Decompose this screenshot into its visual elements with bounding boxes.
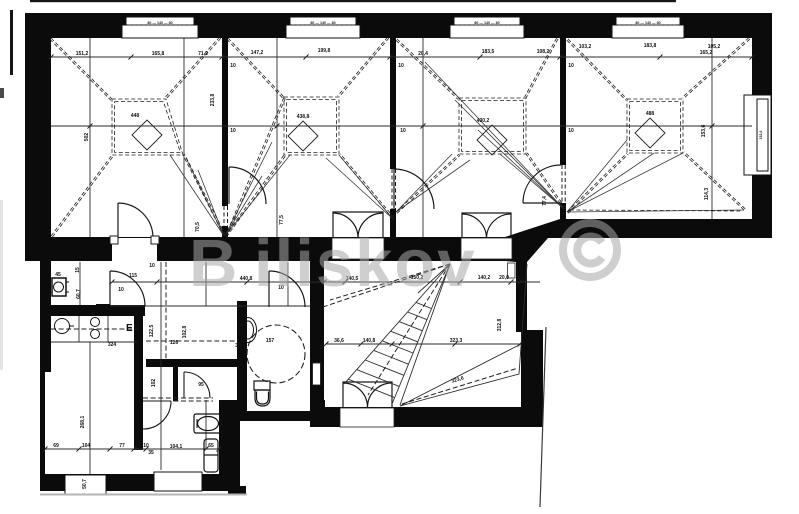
svg-text:80 — 140 — 80: 80 — 140 — 80 (474, 21, 499, 25)
svg-text:10: 10 (143, 443, 149, 449)
svg-text:183,5: 183,5 (482, 49, 495, 55)
svg-text:152,6: 152,6 (759, 131, 763, 140)
svg-text:502: 502 (84, 133, 90, 142)
svg-text:122,5: 122,5 (149, 325, 155, 338)
svg-text:448: 448 (131, 113, 140, 119)
svg-text:50,7: 50,7 (82, 479, 88, 489)
svg-text:165,2: 165,2 (700, 50, 713, 56)
svg-text:440,8: 440,8 (240, 276, 253, 282)
svg-text:80 — 140 — 80: 80 — 140 — 80 (635, 21, 660, 25)
svg-text:430,2: 430,2 (477, 118, 490, 124)
svg-text:77,4: 77,4 (542, 196, 548, 206)
svg-text:80 — 140 — 80: 80 — 140 — 80 (310, 21, 335, 25)
svg-text:15: 15 (75, 267, 81, 273)
svg-text:115: 115 (129, 273, 137, 279)
svg-text:312,8: 312,8 (497, 319, 503, 332)
svg-text:126: 126 (170, 340, 179, 346)
svg-text:183,8: 183,8 (644, 43, 657, 49)
svg-text:268,1: 268,1 (80, 416, 86, 429)
svg-text:10: 10 (568, 128, 574, 134)
svg-text:10: 10 (230, 63, 236, 69)
svg-text:20,0: 20,0 (499, 275, 509, 281)
svg-text:60,7: 60,7 (76, 289, 82, 299)
svg-text:95: 95 (198, 382, 204, 388)
svg-text:E: E (126, 323, 133, 334)
svg-text:140,8: 140,8 (363, 338, 376, 344)
svg-text:10: 10 (398, 63, 404, 69)
svg-text:10: 10 (568, 63, 574, 69)
svg-text:10: 10 (118, 287, 124, 293)
svg-text:10: 10 (230, 128, 236, 134)
svg-text:77,5: 77,5 (279, 215, 285, 225)
svg-text:65: 65 (208, 443, 214, 449)
svg-text:31: 31 (235, 343, 241, 349)
svg-text:151,2: 151,2 (76, 51, 89, 57)
svg-text:438,8: 438,8 (297, 114, 310, 120)
svg-text:165,8: 165,8 (152, 51, 165, 57)
svg-text:10: 10 (400, 128, 406, 134)
svg-text:80 — 140 — 80: 80 — 140 — 80 (147, 21, 172, 25)
svg-text:104,1: 104,1 (170, 444, 183, 450)
svg-text:35: 35 (148, 450, 154, 456)
svg-text:233,8: 233,8 (210, 94, 216, 107)
svg-text:10: 10 (149, 263, 155, 269)
svg-text:77: 77 (119, 443, 125, 449)
svg-text:45: 45 (55, 272, 61, 278)
svg-text:69: 69 (53, 443, 59, 449)
svg-text:114,3: 114,3 (704, 188, 710, 200)
svg-text:140,2: 140,2 (478, 275, 491, 281)
svg-text:103,2: 103,2 (579, 44, 592, 50)
svg-text:iliskov: iliskov (254, 226, 477, 301)
svg-text:102,8: 102,8 (182, 326, 188, 339)
svg-text:199,8: 199,8 (318, 48, 331, 54)
svg-text:102: 102 (151, 379, 157, 388)
svg-text:324: 324 (108, 342, 117, 348)
svg-text:20,4: 20,4 (418, 51, 428, 57)
svg-text:71,2: 71,2 (198, 51, 208, 57)
svg-text:108,2: 108,2 (537, 49, 550, 55)
svg-text:B: B (189, 226, 237, 301)
svg-text:104: 104 (82, 443, 91, 449)
svg-text:153,6: 153,6 (701, 125, 707, 138)
svg-text:36,6: 36,6 (334, 338, 344, 344)
svg-text:488: 488 (646, 111, 655, 117)
svg-text:147,2: 147,2 (251, 50, 264, 56)
svg-text:157: 157 (266, 338, 275, 344)
